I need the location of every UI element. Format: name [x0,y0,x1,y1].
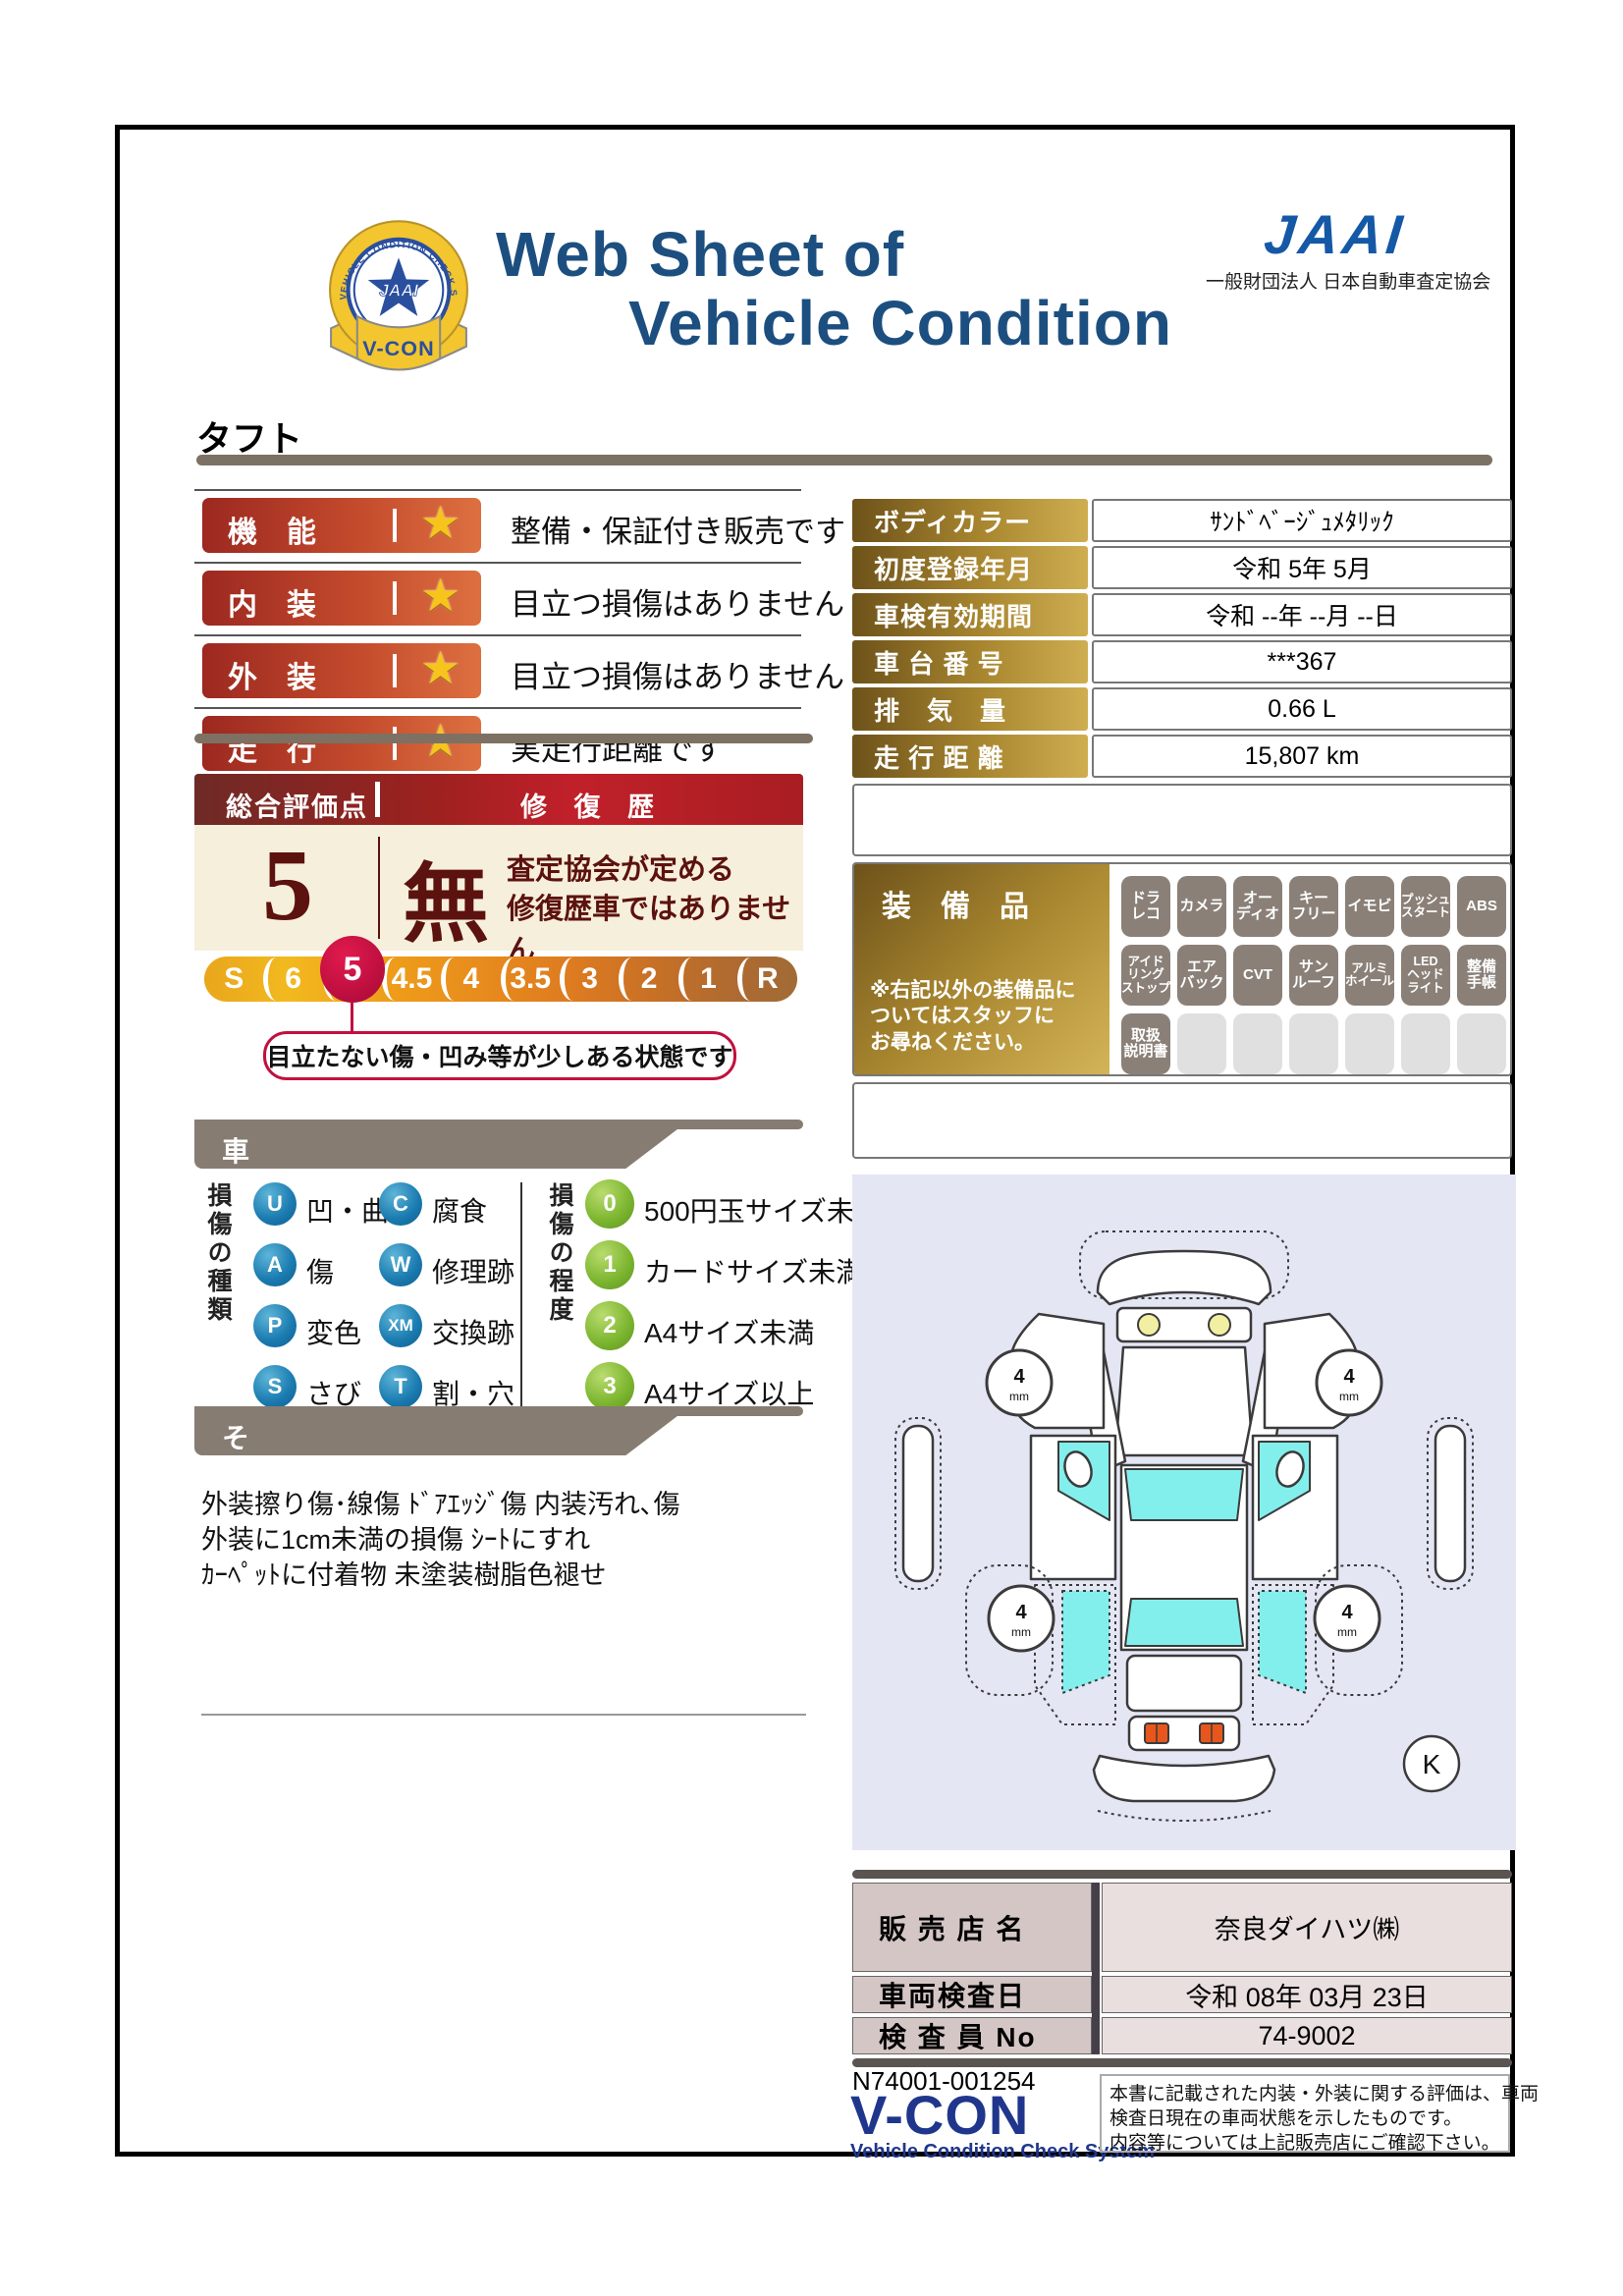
equipment-chip: 整備 手帳 [1457,945,1506,1006]
equipment-chip-empty [1233,1013,1282,1074]
damage-type-w: W [379,1243,422,1286]
equipment-title: 装 備 品 [882,882,1029,925]
side-skirt-left [903,1426,933,1581]
mileage-value: 15,807 km [1092,735,1512,778]
svg-text:4: 4 [1341,1602,1353,1623]
damage-type-u: U [253,1182,297,1226]
equipment-chip: カメラ [1177,876,1226,937]
chassis-number-value: ***367 [1092,640,1512,683]
k-marker: K [1404,1736,1459,1791]
damage-degree-0: 0 [585,1179,634,1229]
equipment-chip: サン ルーフ [1289,945,1338,1006]
other-condition-line: 外装擦り傷･線傷 ﾄﾞｱｴｯｼﾞ傷 内装汚れ､傷 [201,1483,680,1521]
rear-bumper [1094,1756,1274,1801]
equipment-chip: キー フリー [1289,876,1338,937]
rating-desc-interior: 目立つ損傷はありません [511,579,844,619]
damage-type-xm: XM [379,1304,422,1347]
rating-desc-mileage: 実走行距離です [511,725,724,764]
blank-box [852,1082,1512,1159]
tire-rear-left: 4 mm [989,1586,1054,1651]
svg-text:4: 4 [1343,1366,1355,1388]
equipment-chip-empty [1177,1013,1226,1074]
damage-type-label: 損傷の種類 [200,1182,236,1418]
blank-box [852,784,1512,856]
equipment-chip: 取扱 説明書 [1121,1013,1170,1074]
equipment-chip: イモビ [1345,876,1394,937]
divider-bar [194,734,813,743]
footer-note: 本書に記載された内装・外装に関する評価は、車両 検査日現在の車両状態を示したもの… [1100,2074,1510,2153]
tire-front-right: 4 mm [1317,1350,1381,1415]
svg-text:mm: mm [1011,1625,1031,1639]
tire-front-left: 4 mm [987,1350,1052,1415]
equipment-chip: アイド リング ストップ [1121,945,1170,1006]
vcon-badge-logo: JAAI VEHICLE CONDITION CHECK SYSTEM V-CO… [312,211,485,388]
inspection-validity-value: 令和 --年 --月 --日 [1092,593,1512,636]
first-registration-value: 令和 5年 5月 [1092,546,1512,589]
rating-bar-exterior: 外 装 ★ [202,643,481,698]
badge-center-text: JAAI [379,280,419,300]
damage-type-s: S [253,1365,297,1408]
damage-type-p: P [253,1304,297,1347]
headlight-right [1209,1314,1230,1336]
svg-text:mm: mm [1009,1390,1029,1403]
side-skirt-right [1435,1426,1465,1581]
vehicle-condition-sheet: JAAI VEHICLE CONDITION CHECK SYSTEM V-CO… [0,0,1623,2296]
score-callout: 目立たない傷・凹み等が少しある状態です [263,1031,736,1080]
equipment-chip-empty [1401,1013,1450,1074]
rating-bar-mileage: 走 行 ★ [202,716,481,771]
rear-bumper-outline [1098,1811,1271,1821]
hood [1115,1347,1253,1455]
overall-score-header: 総合評価点 修 復 歴 [194,774,803,825]
equipment-chip: プッシュ スタート [1401,876,1450,937]
svg-text:K: K [1423,1749,1441,1779]
body-color-value: ｻﾝﾄﾞﾍﾞｰｼﾞｭﾒﾀﾘｯｸ [1092,499,1512,542]
equipment-chip: CVT [1233,945,1282,1006]
svg-text:mm: mm [1337,1625,1357,1639]
damage-type-a: A [253,1243,297,1286]
equipment-chip-empty [1457,1013,1506,1074]
jaai-subtitle: 一般財団法人 日本自動車査定協会 [1206,267,1490,294]
equipment-chip: アルミ ホイール [1345,945,1394,1006]
equipment-chip: エア バック [1177,945,1226,1006]
sheet-title-line2: Vehicle Condition [628,287,1172,359]
equipment-chip: ABS [1457,876,1506,937]
headlight-left [1138,1314,1160,1336]
repair-history-mark: 無 [403,835,489,959]
equipment-chip-empty [1289,1013,1338,1074]
equipment-note: ※右記以外の装備品に ついてはスタッフに お尋ねください。 [870,978,1075,1056]
star-icon: ★ [420,496,460,549]
dealer-name-value: 奈良ダイハツ㈱ [1102,1883,1512,1972]
badge-ribbon-text: V-CON [362,336,435,360]
damage-type-c: C [379,1182,422,1226]
vcon-logo: V-CON [850,2088,1029,2143]
rear-gate [1127,1656,1241,1711]
svg-text:mm: mm [1339,1390,1359,1403]
equipment-chip-empty [1345,1013,1394,1074]
equipment-chip: ドラ レコ [1121,876,1170,937]
damage-type-t: T [379,1365,422,1408]
tire-rear-right: 4 mm [1315,1586,1380,1651]
overall-score-value: 5 [214,827,361,944]
windshield [1125,1469,1243,1520]
divider-bar [196,455,1492,465]
rating-bar-interior: 内 装 ★ [202,571,481,626]
svg-text:4: 4 [1013,1366,1025,1388]
damage-degree-label: 損傷の程度 [542,1182,577,1418]
other-condition-line: 外装に1cm未満の損傷 ｼｰﾄにすれ [201,1518,590,1557]
damage-degree-2: 2 [585,1301,634,1350]
damage-degree-1: 1 [585,1240,634,1289]
other-condition-line: ｶｰﾍﾟｯﾄに付着物 未塗装樹脂色褪せ [201,1554,607,1592]
rear-door-window-left [1062,1591,1109,1693]
star-icon: ★ [420,641,460,694]
rating-desc-function: 整備・保証付き販売です [511,507,845,546]
displacement-value: 0.66 L [1092,687,1512,731]
inspector-no-value: 74-9002 [1102,2017,1512,2054]
equipment-chip: オー ディオ [1233,876,1282,937]
car-damage-diagram: 4 mm 4 mm 4 mm 4 mm [852,1175,1516,1850]
front-bumper [1098,1251,1271,1304]
rating-bar-function: 機 能 ★ [202,498,481,553]
rating-desc-exterior: 目立つ損傷はありません [511,652,844,691]
damage-degree-3: 3 [585,1362,634,1411]
sheet-title-line1: Web Sheet of [496,218,904,291]
rear-window [1125,1599,1243,1646]
star-icon: ★ [420,569,460,622]
inspection-date-value: 令和 08年 03月 23日 [1102,1976,1512,2013]
equipment-chip: LED ヘッド ライト [1401,945,1450,1006]
rear-door-window-right [1259,1591,1306,1693]
overall-score-body: 5 無 査定協会が定める 修復歴車ではありません [194,825,803,951]
svg-text:4: 4 [1015,1602,1027,1623]
equipment-section: 装 備 品 ※右記以外の装備品に ついてはスタッフに お尋ねください。 ドラ レ… [852,862,1512,1076]
jaai-logo: JAAI [1262,202,1409,266]
selected-score-badge: 5 [320,936,385,1003]
